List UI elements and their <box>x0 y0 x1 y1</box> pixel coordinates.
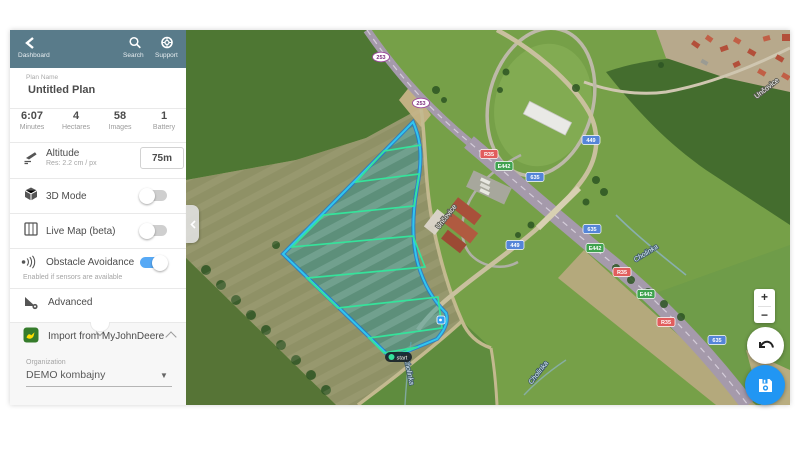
route-shield-e442: E442 <box>586 244 604 253</box>
route-shield-253: 253 <box>373 52 390 62</box>
svg-text:253: 253 <box>376 55 385 61</box>
altitude-label: Altitude <box>46 148 79 159</box>
sidebar: Dashboard Search Support Plan Name 6:07M… <box>10 30 186 405</box>
select-underline <box>26 386 172 387</box>
route-shield-635: 635 <box>526 173 544 182</box>
divider <box>10 142 186 143</box>
svg-text:E442: E442 <box>589 246 602 252</box>
svg-text:635: 635 <box>712 338 721 344</box>
route-shield-635: 635 <box>708 336 726 345</box>
live-map-label: Live Map (beta) <box>46 226 115 237</box>
dashboard-button[interactable]: Dashboard <box>18 52 50 59</box>
john-deere-logo <box>23 327 39 343</box>
svg-text:E442: E442 <box>640 292 653 298</box>
satellite-map: 253 253 R35 E442 635 449 635 E442 449 R3… <box>186 30 790 405</box>
save-floppy-icon <box>757 377 774 394</box>
route-shield-r35: R35 <box>480 150 498 159</box>
route-shield-253: 253 <box>413 98 430 108</box>
stat-hectares: 4Hectares <box>54 110 98 131</box>
altitude-input[interactable] <box>140 147 184 169</box>
obstacle-avoidance-toggle[interactable] <box>140 257 167 268</box>
live-map-icon <box>23 221 39 237</box>
svg-text:R35: R35 <box>484 152 494 158</box>
start-marker[interactable]: start <box>385 352 412 362</box>
route-shield-449: 449 <box>506 241 524 250</box>
altitude-resolution: Res: 2.2 cm / px <box>46 160 97 167</box>
zoom-control: + − <box>754 289 775 323</box>
svg-text:635: 635 <box>530 175 539 181</box>
start-label: start <box>397 356 408 362</box>
save-plan-button[interactable] <box>745 365 785 405</box>
route-shield-449: 449 <box>582 136 600 145</box>
3d-mode-toggle[interactable] <box>140 190 167 201</box>
zoom-out-button[interactable]: − <box>754 307 775 324</box>
topbar: Dashboard Search Support <box>10 30 186 68</box>
divider <box>10 248 186 249</box>
svg-text:R35: R35 <box>617 270 627 276</box>
svg-text:R35: R35 <box>661 320 671 326</box>
svg-text:449: 449 <box>510 243 519 249</box>
route-shield-635: 635 <box>583 225 601 234</box>
route-shield-e442: E442 <box>495 162 513 171</box>
sidebar-collapse-handle[interactable] <box>186 205 199 243</box>
support-button[interactable]: Support <box>155 52 178 59</box>
divider <box>10 178 186 179</box>
route-shield-r35: R35 <box>657 318 675 327</box>
divider <box>10 288 186 289</box>
divider <box>10 213 186 214</box>
dropdown-arrow-icon[interactable]: ▼ <box>160 371 168 380</box>
3d-mode-label: 3D Mode <box>46 191 87 202</box>
obstacle-avoidance-label: Obstacle Avoidance <box>46 257 134 268</box>
undo-button[interactable] <box>747 327 784 364</box>
obstacle-avoidance-icon <box>20 254 36 270</box>
plan-stats: 6:07Minutes 4Hectares 58Images 1Battery <box>10 110 186 131</box>
import-johndeere-label[interactable]: Import from MyJohnDeere <box>48 331 164 342</box>
stat-battery: 1Battery <box>142 110 186 131</box>
svg-text:635: 635 <box>587 227 596 233</box>
back-icon[interactable] <box>24 37 38 49</box>
organization-select[interactable]: DEMO kombajny <box>26 369 105 381</box>
route-shield-r35: R35 <box>613 268 631 277</box>
toggle-knob <box>139 223 155 239</box>
svg-text:E442: E442 <box>498 164 511 170</box>
advanced-label[interactable]: Advanced <box>48 297 92 308</box>
drone-plan-app: Dashboard Search Support Plan Name 6:07M… <box>10 30 790 405</box>
svg-text:449: 449 <box>586 138 595 144</box>
plan-name-label: Plan Name <box>26 74 58 81</box>
zoom-in-button[interactable]: + <box>754 289 775 306</box>
toggle-knob <box>139 188 155 204</box>
live-map-toggle[interactable] <box>140 225 167 236</box>
plan-name-input[interactable] <box>26 83 170 97</box>
advanced-tools-icon <box>23 294 39 310</box>
waypoint-dot <box>439 319 442 322</box>
svg-text:253: 253 <box>416 101 425 107</box>
cube-3d-icon <box>23 186 39 202</box>
support-icon[interactable] <box>160 36 174 49</box>
undo-arrow-icon <box>757 338 775 354</box>
divider <box>10 108 186 109</box>
stat-images: 58Images <box>98 110 142 131</box>
toggle-knob <box>152 255 168 271</box>
map-canvas[interactable]: 253 253 R35 E442 635 449 635 E442 449 R3… <box>186 30 790 405</box>
organization-label: Organization <box>26 359 66 366</box>
obstacle-avoidance-note: Enabled if sensors are available <box>23 274 122 281</box>
route-shield-e442: E442 <box>637 290 655 299</box>
search-button[interactable]: Search <box>123 52 144 59</box>
search-icon[interactable] <box>128 36 142 49</box>
altitude-plane-icon <box>23 149 39 165</box>
stat-minutes: 6:07Minutes <box>10 110 54 131</box>
chevron-left-icon <box>190 220 196 229</box>
